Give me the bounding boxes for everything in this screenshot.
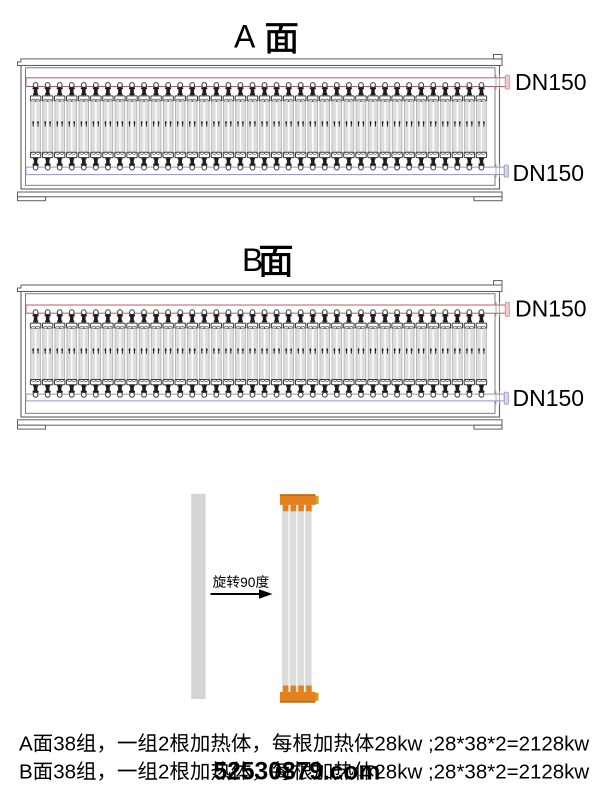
svg-text:52530879.com: 52530879.com — [214, 759, 381, 786]
svg-text:DN150: DN150 — [515, 69, 587, 95]
svg-text:B: B — [19, 761, 33, 784]
svg-text:A: A — [234, 18, 256, 54]
svg-text:28kw ;28*38*2=2128kw: 28kw ;28*38*2=2128kw — [374, 733, 589, 756]
svg-text:DN150: DN150 — [513, 160, 585, 186]
svg-text:90: 90 — [240, 575, 256, 590]
svg-text:DN150: DN150 — [513, 385, 585, 411]
svg-text:38: 38 — [53, 761, 76, 784]
svg-text:28kw ;28*38*2=2128kw: 28kw ;28*38*2=2128kw — [374, 761, 589, 784]
svg-text:DN150: DN150 — [515, 295, 587, 321]
svg-text:38: 38 — [53, 733, 76, 756]
svg-text:A: A — [19, 733, 33, 756]
svg-text:2: 2 — [158, 733, 169, 756]
svg-text:2: 2 — [158, 761, 169, 784]
